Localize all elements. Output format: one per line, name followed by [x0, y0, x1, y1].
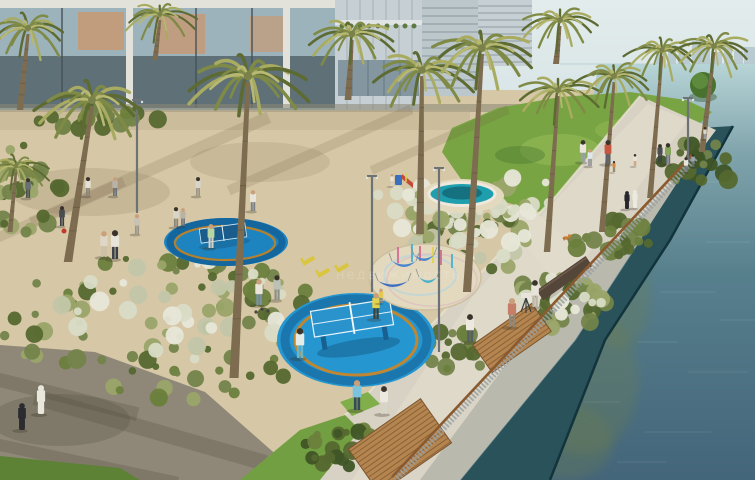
waterfront-park-rendering: недвижимость: [0, 0, 755, 480]
park-scene-canvas: [0, 0, 755, 480]
